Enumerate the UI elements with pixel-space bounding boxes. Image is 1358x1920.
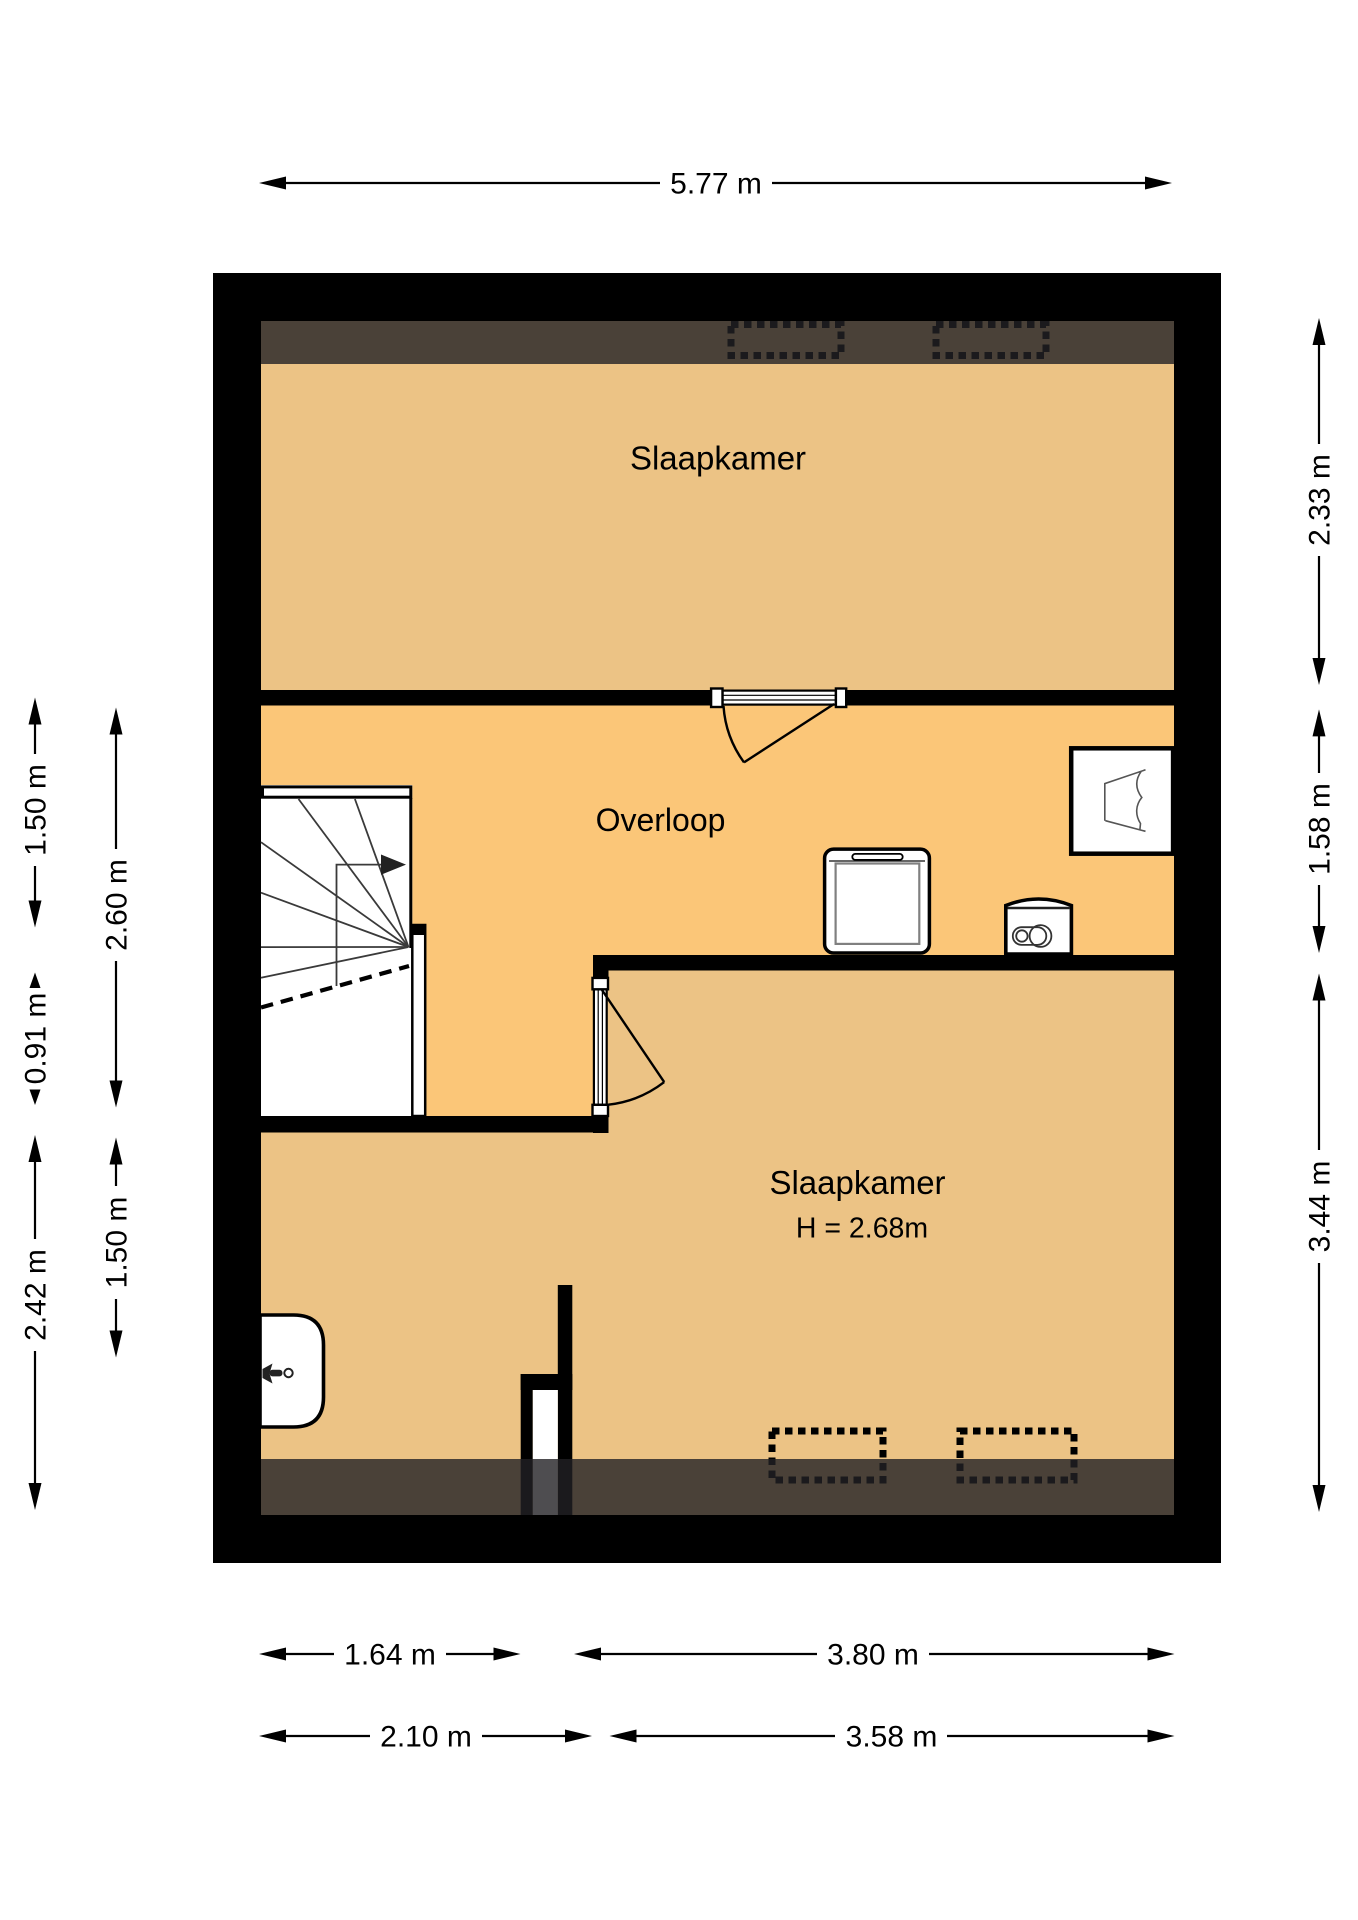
svg-text:1.64 m: 1.64 m xyxy=(344,1639,436,1672)
svg-text:2.10 m: 2.10 m xyxy=(380,1721,472,1754)
svg-text:0.91 m: 0.91 m xyxy=(20,993,53,1085)
svg-text:Overloop: Overloop xyxy=(596,802,726,838)
svg-text:3.58 m: 3.58 m xyxy=(846,1721,938,1754)
svg-text:3.44 m: 3.44 m xyxy=(1304,1161,1337,1253)
svg-text:3.80 m: 3.80 m xyxy=(827,1639,919,1672)
svg-text:1.58 m: 1.58 m xyxy=(1304,783,1337,875)
svg-text:Slaapkamer: Slaapkamer xyxy=(769,1164,945,1201)
svg-text:2.42 m: 2.42 m xyxy=(20,1249,53,1341)
svg-text:1.50 m: 1.50 m xyxy=(20,764,53,856)
svg-text:H = 2.68m: H = 2.68m xyxy=(796,1213,928,1245)
svg-text:1.50 m: 1.50 m xyxy=(101,1197,134,1289)
svg-text:2.33 m: 2.33 m xyxy=(1304,454,1337,546)
svg-text:2.60 m: 2.60 m xyxy=(101,859,134,951)
svg-text:Slaapkamer: Slaapkamer xyxy=(630,440,806,477)
svg-text:5.77 m: 5.77 m xyxy=(670,168,762,201)
